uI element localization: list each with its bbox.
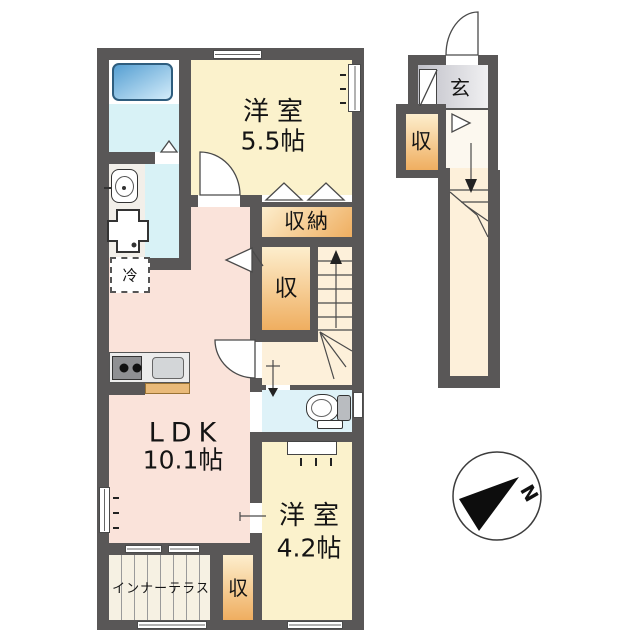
- toilet-tank: [337, 395, 351, 421]
- wall: [262, 237, 352, 247]
- stairwell-wall-right: [488, 170, 500, 388]
- label-storage-bottom: 収: [228, 578, 248, 598]
- toilet-door-gap: [266, 385, 290, 390]
- label-bedroom-upper-name: 洋室: [243, 99, 311, 125]
- window-bedroom-upper-right: [348, 64, 361, 112]
- north-needle: [459, 477, 519, 531]
- label-storage-entry: 収: [411, 132, 432, 153]
- window-terrace-2: [168, 545, 200, 553]
- kitchen-half-wall: [109, 383, 145, 395]
- bathroom-floor: [109, 104, 179, 152]
- stove: [112, 356, 142, 380]
- window-ldk-left: [99, 487, 110, 533]
- toilet-bowl-inner: [311, 399, 332, 417]
- bedroom-upper-door-gap: [198, 195, 240, 207]
- air-conditioner: [287, 441, 337, 455]
- wall: [250, 195, 262, 342]
- compass-icon: N: [453, 452, 542, 540]
- shoe-cabinet: [419, 69, 437, 107]
- washroom-floor: [145, 164, 179, 258]
- label-ldk-size: 10.1帖: [143, 448, 224, 473]
- label-entrance: 玄: [450, 78, 470, 98]
- bathtub: [112, 63, 173, 101]
- wall: [210, 555, 223, 620]
- label-closet: 収納: [284, 212, 330, 233]
- label-bedroom-lower-name: 洋室: [279, 503, 347, 529]
- ldk-hall-door-gap: [250, 342, 262, 378]
- wall: [262, 202, 352, 207]
- entrance-door-gap: [446, 55, 478, 65]
- wall: [250, 533, 262, 543]
- label-refrigerator: 冷: [122, 269, 137, 284]
- washbasin-bowl: [115, 176, 134, 197]
- room-ldk: [109, 258, 250, 543]
- stairwell-wall-left: [438, 170, 450, 388]
- label-bedroom-lower-size: 4.2帖: [277, 536, 342, 561]
- bedroom-lower-door-gap: [250, 503, 262, 533]
- window-terrace-1: [125, 545, 162, 553]
- floor-plan: N 洋室 5.5帖 収納 収 LDK 10.1帖 洋室 4.2帖 収 インナーテ…: [0, 0, 640, 640]
- compass-north-label: N: [515, 481, 542, 506]
- toilet-base: [317, 420, 343, 429]
- wall: [109, 152, 155, 164]
- counter-shelf: [145, 383, 190, 394]
- stairs-up-area: [318, 247, 352, 330]
- window-top: [213, 50, 262, 59]
- window-bottom-1: [137, 621, 207, 629]
- wall: [253, 555, 262, 620]
- wall: [310, 247, 318, 330]
- stairwell-wall-bottom: [438, 376, 500, 388]
- wall: [143, 258, 191, 270]
- wall: [250, 442, 262, 503]
- wall: [250, 378, 262, 392]
- label-inner-terrace: インナーテラス: [112, 583, 210, 596]
- room-ldk-upper-strip: [191, 207, 250, 258]
- wall: [262, 330, 318, 342]
- window-bottom-2: [287, 621, 343, 629]
- label-ldk-name: LDK: [149, 420, 224, 447]
- label-bedroom-upper-size: 5.5帖: [241, 129, 306, 154]
- wall: [179, 60, 191, 270]
- room-bedroom-lower: [262, 442, 352, 620]
- door-arc-entrance: [446, 12, 478, 55]
- label-storage-mid: 収: [275, 278, 298, 301]
- stairwell-floor: [450, 168, 488, 376]
- kitchen-sink: [152, 357, 184, 379]
- window-toilet: [353, 392, 363, 418]
